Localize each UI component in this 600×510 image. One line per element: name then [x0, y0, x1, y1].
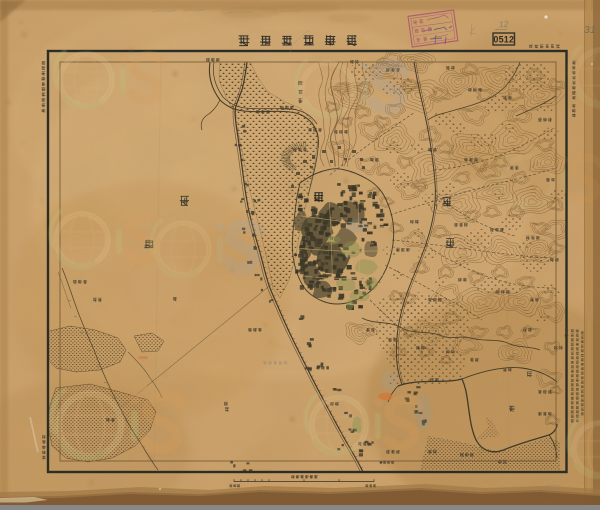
svg-text:12: 12 — [499, 19, 510, 30]
svg-text:31: 31 — [584, 24, 596, 36]
svg-text:30: 30 — [550, 484, 560, 494]
svg-text:0512: 0512 — [493, 35, 514, 45]
